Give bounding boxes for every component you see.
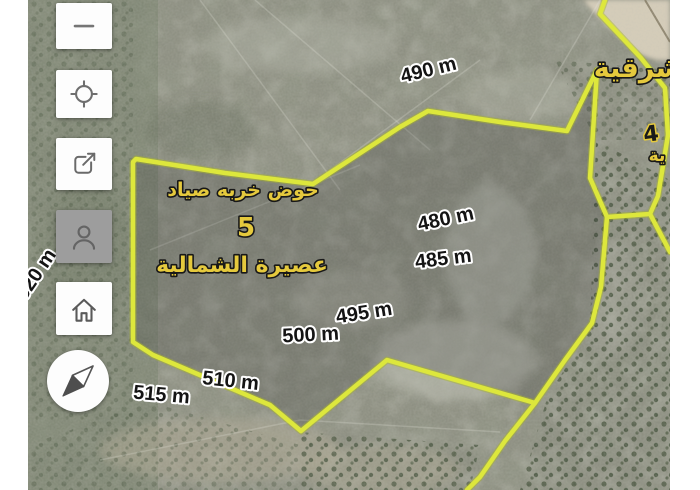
locate-button[interactable]	[56, 70, 112, 118]
compass-button[interactable]	[47, 350, 109, 412]
profile-button[interactable]	[56, 210, 112, 263]
letterbox-right	[670, 0, 700, 490]
letterbox-left	[0, 0, 28, 490]
crosshair-icon	[65, 75, 103, 113]
home-icon	[64, 289, 104, 329]
map-window: 490 m 480 m 485 m 495 m 500 m 510 m 515 …	[0, 0, 700, 490]
neighbor-label-sharqiya: شرقية	[594, 53, 682, 84]
home-button[interactable]	[56, 282, 112, 335]
basin-number-label: 5	[237, 213, 255, 243]
person-icon	[64, 217, 104, 257]
town-name-label: عصيرة الشمالية	[156, 253, 328, 278]
neighbor-text-fragment: ية	[649, 146, 666, 166]
minus-icon	[66, 8, 102, 44]
share-icon	[65, 145, 103, 183]
compass-icon	[47, 350, 109, 412]
share-button[interactable]	[56, 138, 112, 190]
elevation-label-500: 500 m	[282, 323, 340, 348]
zoom-out-button[interactable]	[56, 3, 112, 49]
basin-title-label: حوض خربه صياد	[167, 179, 319, 201]
